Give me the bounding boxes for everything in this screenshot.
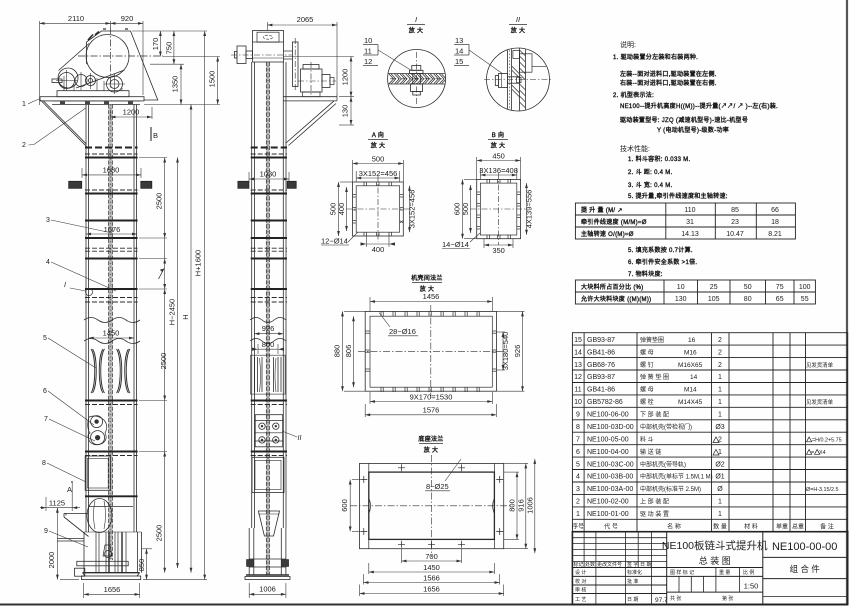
svg-text:12: 12: [364, 57, 372, 66]
svg-text:放 大: 放 大: [491, 142, 506, 150]
svg-text:97.7: 97.7: [655, 597, 668, 604]
svg-text:放 大: 放 大: [424, 446, 439, 454]
svg-text:2: 2: [718, 362, 722, 369]
svg-text:输 送 链: 输 送 链: [640, 448, 661, 456]
svg-text:80: 80: [744, 296, 752, 303]
svg-text:总重: 总重: [792, 523, 804, 531]
svg-text:800: 800: [262, 340, 275, 349]
svg-text:驱 动 装 置: 驱 动 装 置: [640, 510, 669, 518]
svg-text:400: 400: [337, 203, 346, 216]
svg-text:NE100-06-00: NE100-06-00: [587, 412, 629, 419]
svg-text:1200: 1200: [123, 108, 140, 117]
svg-text:2: 2: [718, 337, 722, 344]
svg-text:放 大: 放 大: [371, 142, 386, 150]
svg-text:880: 880: [333, 345, 342, 358]
svg-text:12−Ø14: 12−Ø14: [321, 237, 348, 246]
svg-text:工 艺: 工 艺: [575, 597, 586, 603]
svg-text:1500: 1500: [208, 71, 217, 88]
svg-text:H+1600: H+1600: [194, 250, 203, 276]
svg-text:弹簧垫圈: 弹簧垫圈: [640, 336, 664, 344]
svg-text:10: 10: [677, 284, 685, 291]
svg-text:105: 105: [708, 296, 720, 303]
svg-text:NE100-00-00: NE100-00-00: [772, 541, 837, 553]
svg-text:700: 700: [425, 552, 438, 561]
svg-text:GB93-87: GB93-87: [587, 374, 615, 381]
svg-text:400: 400: [372, 245, 385, 254]
svg-text:Y (电动机型号)-级数-功率: Y (电动机型号)-级数-功率: [657, 126, 729, 134]
svg-text:说明:: 说明:: [620, 40, 636, 49]
svg-text:GB5782-86: GB5782-86: [587, 399, 623, 406]
svg-text:8−Ø25: 8−Ø25: [426, 482, 449, 491]
svg-text:15: 15: [574, 337, 582, 344]
svg-text:校 对: 校 对: [575, 578, 586, 585]
svg-text:3: 3: [576, 486, 580, 493]
svg-text:130: 130: [341, 105, 350, 118]
svg-text:GB41-86: GB41-86: [587, 349, 615, 356]
svg-text:806: 806: [344, 345, 353, 358]
svg-text:A: A: [67, 485, 72, 494]
svg-text:螺 母: 螺 母: [640, 348, 654, 356]
svg-text:GB41-86: GB41-86: [587, 387, 615, 394]
svg-text:螺 母: 螺 母: [640, 386, 654, 394]
svg-text:审 核: 审 核: [575, 587, 586, 594]
svg-text:350: 350: [492, 246, 505, 255]
svg-text:重 量: 重 量: [719, 569, 730, 576]
svg-text:170: 170: [151, 38, 160, 51]
svg-text:M16: M16: [684, 349, 697, 356]
svg-text:14−Ø14: 14−Ø14: [442, 240, 469, 249]
svg-text:NE100-03B-00: NE100-03B-00: [587, 474, 633, 481]
svg-text:设 计: 设 计: [575, 569, 586, 576]
svg-text:920: 920: [121, 14, 134, 23]
svg-text:7: 7: [576, 436, 580, 443]
svg-text:2. 机型表示法:: 2. 机型表示法:: [613, 91, 654, 99]
svg-text:下 部 装 配: 下 部 装 配: [640, 411, 669, 419]
svg-text:NE100-04-00: NE100-04-00: [587, 449, 629, 456]
svg-text:批 准: 批 准: [627, 578, 638, 585]
svg-text:600: 600: [340, 499, 349, 512]
svg-text:18: 18: [771, 219, 779, 226]
svg-text:916: 916: [517, 499, 526, 512]
svg-text:50: 50: [744, 284, 752, 291]
svg-text:M14X45: M14X45: [678, 399, 703, 406]
svg-text:2: 2: [22, 142, 26, 149]
svg-text:6: 6: [576, 449, 580, 456]
svg-text:总 装 图: 总 装 图: [699, 555, 731, 566]
svg-text:1: 1: [718, 511, 722, 518]
svg-text:1006: 1006: [526, 497, 535, 514]
svg-text:110: 110: [684, 207, 695, 214]
svg-text:材 料: 材 料: [744, 523, 758, 531]
svg-text:1456: 1456: [423, 292, 440, 301]
svg-text:Ø=H-3.15/2.5: Ø=H-3.15/2.5: [806, 487, 839, 493]
svg-text:更改文件号: 更改文件号: [597, 561, 622, 568]
svg-text:23: 23: [731, 219, 739, 226]
svg-text:14: 14: [455, 47, 463, 56]
svg-text:技术性能:: 技术性能:: [620, 144, 650, 153]
svg-text:放 大: 放 大: [409, 27, 424, 35]
svg-text:代 号: 代 号: [604, 523, 618, 531]
svg-text:中部机壳(标准节 2.5M): 中部机壳(标准节 2.5M): [640, 485, 701, 493]
svg-text:9: 9: [44, 528, 48, 535]
svg-text:2: 2: [718, 349, 722, 356]
svg-text:5: 5: [576, 461, 580, 468]
svg-text:2000: 2000: [47, 552, 56, 569]
svg-text:55: 55: [801, 296, 809, 303]
svg-text:1656: 1656: [104, 585, 121, 594]
svg-text:5: 5: [43, 335, 47, 342]
svg-text:1: 1: [718, 374, 722, 381]
svg-text:1: 1: [718, 499, 722, 506]
svg-text:II: II: [516, 15, 520, 24]
svg-text:1: 1: [22, 101, 26, 108]
svg-text:主轴转速 O/(M)=Ø: 主轴转速 O/(M)=Ø: [581, 230, 634, 238]
svg-text:500: 500: [372, 155, 385, 164]
svg-text:926: 926: [262, 324, 275, 333]
svg-text:右装--面对进料口,驱动装置在右侧.: 右装--面对进料口,驱动装置在右侧.: [620, 79, 717, 87]
svg-text:3X136=408: 3X136=408: [479, 166, 518, 175]
svg-text:5. 提升量,牵引件线速度和主轴转速:: 5. 提升量,牵引件线速度和主轴转速:: [628, 192, 728, 200]
svg-text:10.47: 10.47: [726, 231, 744, 238]
svg-text:14.13: 14.13: [681, 231, 699, 238]
svg-text:A 向: A 向: [372, 131, 384, 139]
svg-text:3X152=456: 3X152=456: [408, 190, 417, 229]
svg-text:800: 800: [508, 499, 517, 512]
svg-text:中部机壳(带检视门): 中部机壳(带检视门): [640, 423, 692, 431]
svg-text:25: 25: [710, 284, 718, 291]
svg-text:Ø: Ø: [717, 486, 723, 493]
svg-text:75: 75: [776, 284, 784, 291]
svg-text:I: I: [64, 282, 66, 289]
svg-text:2500: 2500: [155, 525, 164, 542]
svg-text:标记: 标记: [574, 561, 584, 568]
svg-text:31: 31: [686, 219, 694, 226]
svg-text:I: I: [415, 15, 417, 24]
svg-text:NE100--提升机高度H((M))--提升量(↗↗/ ↗: NE100--提升机高度H((M))--提升量(↗↗/ ↗ )--左(右)装.: [620, 102, 778, 110]
svg-text:1450: 1450: [103, 329, 120, 338]
svg-text:牵引件线速度 (M/M)=Ø: 牵引件线速度 (M/M)=Ø: [581, 218, 647, 226]
svg-text:H−2450: H−2450: [168, 299, 177, 325]
svg-text:4: 4: [46, 259, 50, 266]
svg-text:3: 3: [46, 217, 50, 224]
svg-text:2110: 2110: [68, 14, 84, 23]
svg-text:驱动装置型号: JZQ (减速机型号)-速比-机型号: 驱动装置型号: JZQ (减速机型号)-速比-机型号: [620, 116, 748, 124]
svg-text:8: 8: [576, 424, 580, 431]
svg-text:15: 15: [455, 57, 463, 66]
svg-text:2: 2: [576, 499, 580, 506]
svg-text:10: 10: [574, 399, 582, 406]
svg-text:28−Ø16: 28−Ø16: [389, 327, 416, 336]
svg-text:Ø1: Ø1: [715, 474, 724, 481]
svg-text:13: 13: [455, 36, 463, 45]
svg-text:6. 牵引件安全系数 >1倍.: 6. 牵引件安全系数 >1倍.: [628, 258, 697, 266]
svg-text:允许大块料块度 ((M)(M)): 允许大块料块度 ((M)(M)): [581, 295, 651, 303]
svg-text:13: 13: [574, 362, 582, 369]
svg-text:图 样 标 记: 图 样 标 记: [670, 569, 694, 576]
svg-text:提 升 量 (M/ ↗: 提 升 量 (M/ ↗: [581, 206, 623, 214]
svg-text:11: 11: [574, 387, 581, 394]
svg-text:中部机壳(单标节 1.5M,1 M): 中部机壳(单标节 1.5M,1 M): [640, 473, 713, 481]
svg-text:1680: 1680: [103, 166, 120, 175]
svg-text:1: 1: [718, 387, 722, 394]
svg-text:850: 850: [137, 559, 146, 572]
svg-text:9: 9: [576, 412, 580, 419]
svg-text:2500: 2500: [159, 353, 168, 370]
svg-text:NE100-03A-00: NE100-03A-00: [587, 486, 633, 493]
svg-text:II: II: [298, 435, 302, 442]
svg-text:机壳间法兰: 机壳间法兰: [411, 274, 443, 282]
svg-text:1: 1: [718, 412, 722, 419]
svg-text:926: 926: [513, 345, 522, 358]
svg-text:1576: 1576: [104, 225, 121, 234]
svg-text:中部机壳(带导轨): 中部机壳(带导轨): [640, 460, 686, 468]
svg-text:=: =: [811, 450, 814, 456]
svg-text:85: 85: [731, 207, 739, 214]
svg-text:1350: 1350: [171, 76, 180, 93]
svg-text:Ø3: Ø3: [715, 424, 724, 431]
svg-text:NE100板链斗式提升机: NE100板链斗式提升机: [662, 539, 768, 552]
svg-text:见发货清单: 见发货清单: [806, 398, 834, 406]
svg-text:螺 钉: 螺 钉: [640, 361, 654, 369]
svg-text:100: 100: [799, 284, 811, 291]
svg-text:签 字: 签 字: [627, 561, 638, 568]
svg-text:2500: 2500: [155, 193, 164, 210]
svg-text:6: 6: [43, 388, 47, 395]
svg-text:14: 14: [574, 349, 582, 356]
svg-text:4: 4: [576, 474, 580, 481]
svg-text:NE100-01-00: NE100-01-00: [587, 511, 629, 518]
svg-text:底座法兰: 底座法兰: [418, 435, 443, 443]
svg-text:X4: X4: [819, 450, 826, 456]
svg-text:日 期: 日 期: [627, 597, 638, 603]
svg-text:大块料所占百分比 (%): 大块料所占百分比 (%): [581, 283, 644, 291]
svg-text:NE100-03C-00: NE100-03C-00: [587, 461, 634, 468]
svg-text:1:50: 1:50: [744, 582, 759, 591]
svg-text:8.21: 8.21: [768, 231, 782, 238]
svg-text:序号: 序号: [572, 523, 584, 531]
svg-text:弹 簧 垫 圈: 弹 簧 垫 圈: [640, 373, 669, 381]
svg-text:数 量: 数 量: [713, 523, 727, 531]
svg-text:1576: 1576: [423, 406, 440, 415]
svg-text:Ø2: Ø2: [715, 461, 724, 468]
svg-text:3. 斗 宽: 0.4 M.: 3. 斗 宽: 0.4 M.: [628, 181, 673, 189]
svg-text:1. 驱动装置分左装和右装两种.: 1. 驱动装置分左装和右装两种.: [613, 53, 698, 61]
svg-text:65: 65: [776, 296, 784, 303]
svg-text:处数: 处数: [585, 561, 595, 568]
svg-text:B: B: [153, 131, 158, 140]
svg-text:10: 10: [364, 36, 372, 45]
svg-text:4X139=556: 4X139=556: [525, 190, 534, 229]
svg-text:3X152=456: 3X152=456: [359, 169, 398, 178]
svg-text:1656: 1656: [423, 585, 440, 594]
svg-text:NE100-03D-00: NE100-03D-00: [587, 424, 634, 431]
svg-text:名 称: 名 称: [667, 523, 681, 531]
svg-text:14: 14: [690, 374, 698, 381]
svg-text:标准化: 标准化: [627, 569, 642, 576]
svg-text:第 张: 第 张: [722, 595, 733, 602]
svg-text:1: 1: [718, 399, 722, 406]
svg-text:上 部 装 配: 上 部 装 配: [640, 498, 669, 506]
svg-text:1: 1: [576, 511, 580, 518]
svg-text:1125: 1125: [49, 499, 65, 508]
svg-text:1450: 1450: [423, 563, 440, 572]
svg-text:共 张: 共 张: [670, 595, 681, 602]
svg-text:料 斗: 料 斗: [640, 435, 654, 443]
svg-text:500: 500: [461, 203, 470, 216]
svg-text:11: 11: [364, 47, 372, 56]
svg-text:GB68-76: GB68-76: [587, 362, 615, 369]
svg-text:=H/0.2+5.75: =H/0.2+5.75: [812, 437, 842, 443]
svg-text:M16X65: M16X65: [678, 362, 703, 369]
svg-text:H: H: [181, 314, 190, 319]
svg-text:66: 66: [771, 207, 779, 214]
svg-text:2065: 2065: [297, 15, 314, 24]
svg-text:450: 450: [492, 152, 505, 161]
svg-text:B 向: B 向: [492, 131, 505, 139]
svg-text:1030: 1030: [260, 170, 277, 179]
svg-text:比 例: 比 例: [743, 569, 754, 576]
svg-text:7: 7: [44, 416, 48, 423]
svg-text:12: 12: [574, 374, 582, 381]
svg-text:见发货清单: 见发货清单: [806, 361, 834, 369]
svg-text:5. 填充系数按 0.7计算.: 5. 填充系数按 0.7计算.: [628, 246, 693, 254]
svg-text:750: 750: [165, 42, 174, 55]
svg-text:放 大: 放 大: [511, 27, 526, 35]
svg-text:备 注: 备 注: [820, 523, 834, 531]
svg-text:7. 物料块度:: 7. 物料块度:: [628, 270, 663, 278]
svg-text:130: 130: [675, 296, 687, 303]
svg-text:组 合 件: 组 合 件: [790, 564, 821, 574]
svg-text:16: 16: [688, 337, 696, 344]
svg-text:2. 斗 距: 0.4 M.: 2. 斗 距: 0.4 M.: [628, 169, 673, 176]
svg-text:1200: 1200: [341, 69, 350, 86]
svg-text:单重: 单重: [776, 523, 788, 531]
svg-text:9X170=1530: 9X170=1530: [410, 393, 453, 402]
svg-text:3X180=540: 3X180=540: [501, 332, 510, 371]
svg-text:GB93-87: GB93-87: [587, 337, 615, 344]
svg-text:1006: 1006: [259, 585, 276, 594]
svg-text:NE100-05-00: NE100-05-00: [587, 436, 629, 443]
svg-text:1566: 1566: [423, 574, 440, 583]
svg-text:NE100-02-00: NE100-02-00: [587, 499, 629, 506]
svg-text:螺 栓: 螺 栓: [640, 398, 654, 406]
svg-text:M14: M14: [684, 387, 697, 394]
svg-text:日 期: 日 期: [640, 562, 651, 568]
svg-text:8: 8: [42, 460, 46, 467]
svg-text:左装--面对进料口,驱动装置在左侧.: 左装--面对进料口,驱动装置在左侧.: [620, 70, 717, 78]
svg-text:1. 料斗容积: 0.033 M.: 1. 料斗容积: 0.033 M.: [628, 155, 690, 163]
